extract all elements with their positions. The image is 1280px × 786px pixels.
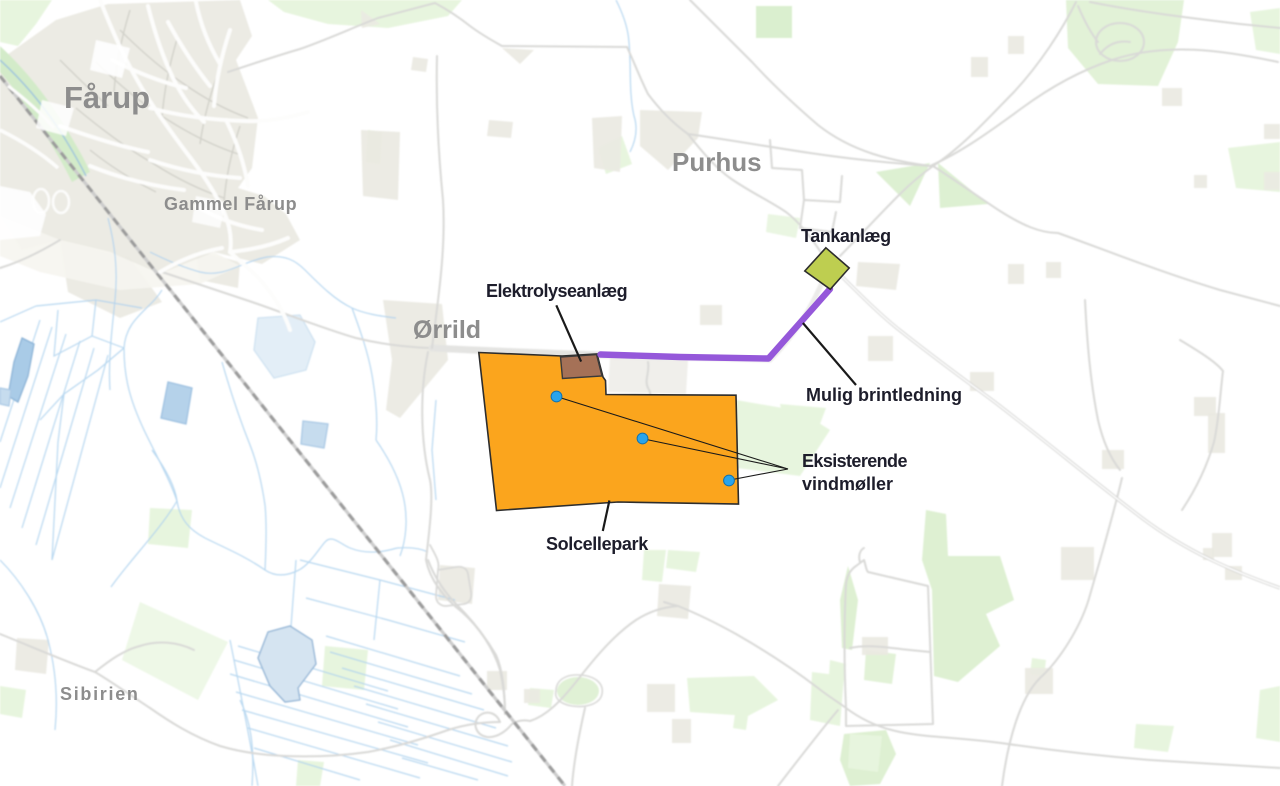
svg-text:Elektrolyseanlæg: Elektrolyseanlæg (486, 281, 627, 301)
svg-text:Solcellepark: Solcellepark (546, 534, 649, 554)
svg-text:Purhus: Purhus (672, 147, 762, 177)
svg-text:Eksisterende: Eksisterende (802, 451, 907, 471)
svg-text:Ørrild: Ørrild (413, 316, 481, 344)
svg-text:Tankanlæg: Tankanlæg (801, 226, 891, 246)
svg-text:Sibirien: Sibirien (60, 684, 140, 704)
svg-text:vindmøller: vindmøller (802, 474, 893, 494)
svg-text:Gammel Fårup: Gammel Fårup (164, 194, 297, 214)
svg-text:Fårup: Fårup (64, 80, 150, 115)
svg-text:Mulig brintledning: Mulig brintledning (806, 385, 962, 405)
